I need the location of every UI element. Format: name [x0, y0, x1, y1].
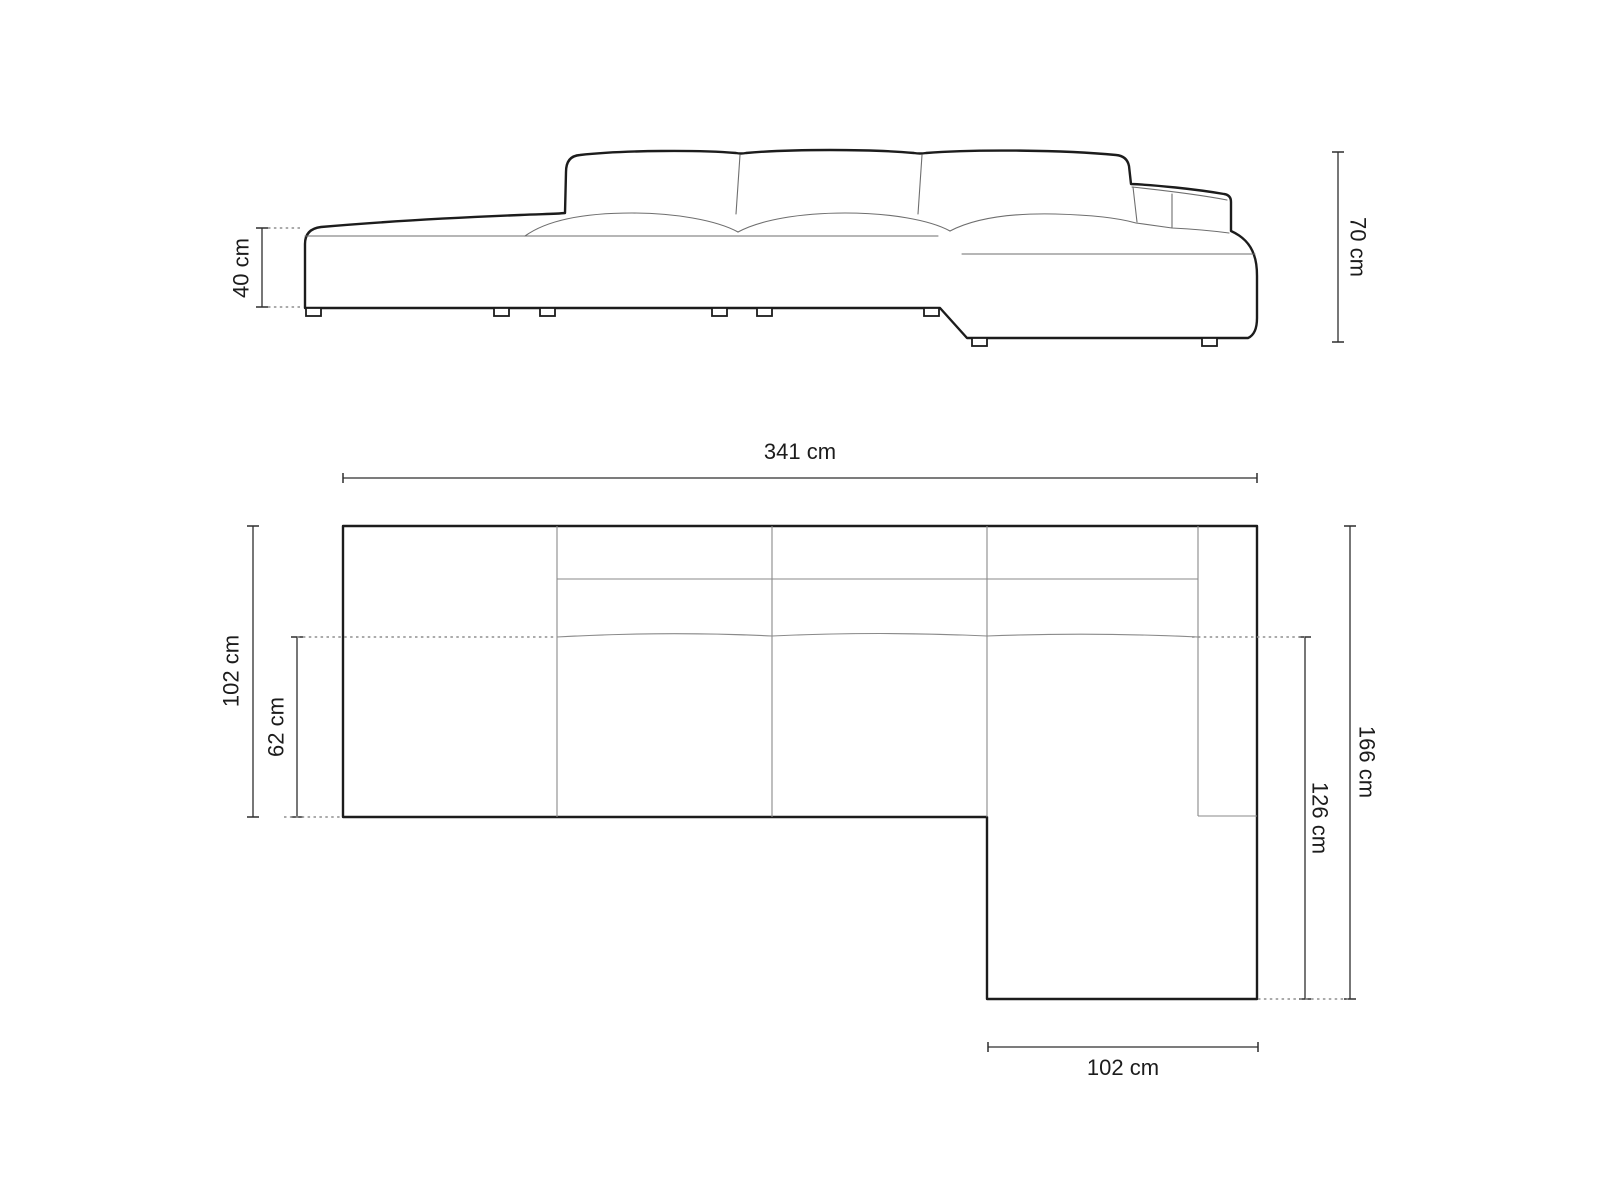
sofa-leg [494, 308, 509, 316]
sofa-leg [972, 338, 987, 346]
sofa-leg [712, 308, 727, 316]
diagram-svg: 40 cm 70 cm 341 cm [0, 0, 1600, 1200]
chaise-width-label: 102 cm [1087, 1055, 1159, 1080]
dimension-total-depth: 166 cm [1344, 526, 1380, 999]
total-depth-label: 166 cm [1355, 726, 1380, 798]
side-elevation-view: 40 cm 70 cm [229, 150, 1371, 346]
total-width-label: 341 cm [764, 439, 836, 464]
sofa-side-outline [305, 150, 1257, 338]
dimension-total-width: 341 cm [343, 439, 1257, 483]
sofa-leg [306, 308, 321, 316]
total-height-label: 70 cm [1346, 217, 1371, 277]
sofa-leg [924, 308, 939, 316]
dimension-total-height: 70 cm [1332, 152, 1371, 342]
seat-depth-label: 62 cm [264, 697, 289, 757]
top-plan-view: 341 cm 102 cm 62 cm 166 cm [219, 439, 1380, 1080]
sofa-leg [757, 308, 772, 316]
left-depth-label: 102 cm [219, 635, 244, 707]
dimension-left-depth: 102 cm [219, 526, 260, 817]
dimension-chaise-width: 102 cm [988, 1042, 1258, 1080]
dimension-seat-height: 40 cm [229, 228, 304, 307]
seat-height-label: 40 cm [229, 238, 254, 298]
chaise-depth-label: 126 cm [1308, 782, 1333, 854]
sofa-leg [1202, 338, 1217, 346]
sofa-dimension-diagram: 40 cm 70 cm 341 cm [0, 0, 1600, 1200]
sofa-plan-outline [343, 526, 1257, 999]
sofa-leg [540, 308, 555, 316]
